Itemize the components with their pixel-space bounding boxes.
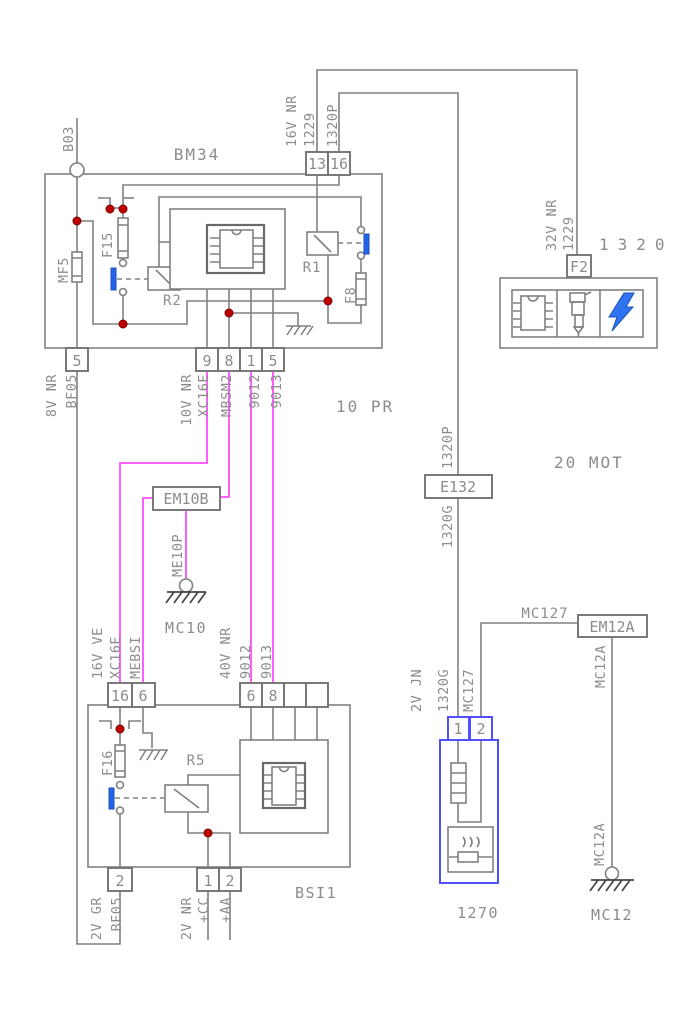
pin-9: 9 — [202, 352, 211, 370]
pin-2-1270: 2 — [476, 720, 485, 738]
fuse-f16 — [115, 745, 125, 777]
label-f16: F16 — [100, 750, 116, 776]
pin-2-bsi: 2 — [115, 872, 124, 890]
bm34-title: BM34 — [174, 145, 221, 164]
contact-f8-bottom — [358, 252, 365, 259]
junction-dot — [225, 309, 233, 317]
junction-dot — [119, 205, 127, 213]
contact-f8-blade — [364, 234, 369, 254]
label-9013-bsi: 9013 — [259, 644, 275, 679]
wiring-diagram-page: BM34 MF5 F15 F8 R2 — [0, 0, 700, 1020]
pin-16-bsi: 16 — [111, 687, 129, 705]
contact-f8-top — [358, 227, 365, 234]
label-2v-nr: 2V NR — [179, 897, 195, 941]
label-mc10: MC10 — [165, 619, 207, 637]
pin-1-bsi: 1 — [203, 872, 212, 890]
fuse-mf5 — [72, 252, 82, 282]
label-10v-nr: 10V NR — [179, 374, 195, 426]
label-f15: F15 — [100, 232, 116, 258]
label-mc12a-lower: MC12A — [592, 823, 608, 866]
pin-6b: 6 — [246, 687, 255, 705]
label-mc127-v: MC127 — [461, 669, 477, 712]
label-b03: B03 — [61, 126, 77, 152]
pin-5: 5 — [268, 352, 277, 370]
pin-16: 16 — [330, 155, 348, 173]
bm34-ic-box — [170, 209, 285, 289]
contact-f15-blade — [111, 268, 116, 290]
label-9013: 9013 — [269, 374, 285, 409]
pin-13: 13 — [308, 155, 326, 173]
junction-dot — [106, 205, 114, 213]
label-40v-nr: 40V NR — [218, 627, 234, 679]
em12a-ref: EM12A — [589, 618, 634, 636]
b03-terminal — [70, 163, 84, 177]
pin-f2: F2 — [570, 258, 588, 276]
label-1320p-e132: 1320P — [440, 426, 456, 469]
label-xc16e: XC16E — [196, 374, 212, 417]
label-mc12: MC12 — [591, 906, 633, 924]
label-r5: R5 — [187, 753, 206, 769]
label-mc12a-upper: MC12A — [593, 645, 609, 688]
e132-ref: E132 — [440, 478, 476, 496]
label-2v-jn: 2V JN — [409, 669, 425, 712]
label-1320-title: 1320 — [599, 235, 674, 254]
label-9012: 9012 — [247, 374, 263, 409]
pin-8: 8 — [224, 352, 233, 370]
label-bf05-bsi: BF05 — [109, 897, 125, 932]
junction-dot — [73, 217, 81, 225]
zone-20mot: 20 MOT — [554, 453, 624, 472]
label-16v-nr: 16V NR — [284, 95, 300, 147]
label-1320g: 1320G — [436, 669, 452, 712]
label-1320g-e132: 1320G — [440, 505, 456, 548]
label-cc: +CC — [196, 897, 212, 923]
label-bf05: BF05 — [64, 374, 80, 409]
label-32v-nr: 32V NR — [544, 199, 560, 251]
pin-5-left: 5 — [72, 352, 81, 370]
label-aa: +AA — [218, 897, 234, 923]
label-2v-gr: 2V GR — [89, 897, 105, 941]
junction-dot — [119, 320, 127, 328]
label-mf5: MF5 — [56, 257, 72, 283]
label-16v-ve: 16V VE — [90, 627, 106, 679]
label-xc16e-bsi: XC16E — [108, 636, 124, 679]
label-mbsm2: MBSM2 — [219, 374, 235, 417]
contact-f16-blade — [109, 788, 114, 809]
contact-f15-top — [120, 260, 127, 267]
bsi1-title: BSI1 — [295, 884, 337, 902]
label-r2: R2 — [163, 293, 182, 309]
pin-box-blank-2 — [306, 683, 328, 707]
label-r1: R1 — [303, 260, 322, 276]
pin-6-bsi: 6 — [138, 687, 147, 705]
label-mebsi: MEBSI — [128, 636, 144, 679]
pin-box-blank-1 — [284, 683, 306, 707]
em10b-ref: EM10B — [163, 490, 208, 508]
zone-10pr: 10 PR — [336, 397, 394, 416]
label-9012-bsi: 9012 — [238, 644, 254, 679]
pin-8-bsi: 8 — [268, 687, 277, 705]
label-f8: F8 — [343, 287, 359, 304]
junction-dot — [116, 725, 124, 733]
pin-2b-bsi: 2 — [225, 872, 234, 890]
junction-dot — [324, 297, 332, 305]
junction-dot — [204, 829, 212, 837]
label-me10p: ME10P — [170, 534, 186, 577]
label-8v-nr: 8V NR — [44, 374, 60, 418]
contact-f15-bottom — [120, 289, 127, 296]
label-1270: 1270 — [457, 904, 499, 922]
bsi1-ic-box — [240, 740, 328, 833]
contact-f16-top — [117, 782, 124, 789]
label-1320p: 1320P — [325, 104, 341, 147]
wiring-diagram: BM34 MF5 F15 F8 R2 — [0, 0, 700, 1020]
label-1229: 1229 — [302, 112, 318, 147]
contact-f16-bottom — [117, 807, 124, 814]
label-1229-right: 1229 — [561, 216, 577, 251]
fuse-f15 — [118, 218, 128, 258]
label-mc127-h: MC127 — [521, 606, 568, 622]
pin-1-1270: 1 — [453, 720, 462, 738]
pin-1: 1 — [246, 352, 255, 370]
